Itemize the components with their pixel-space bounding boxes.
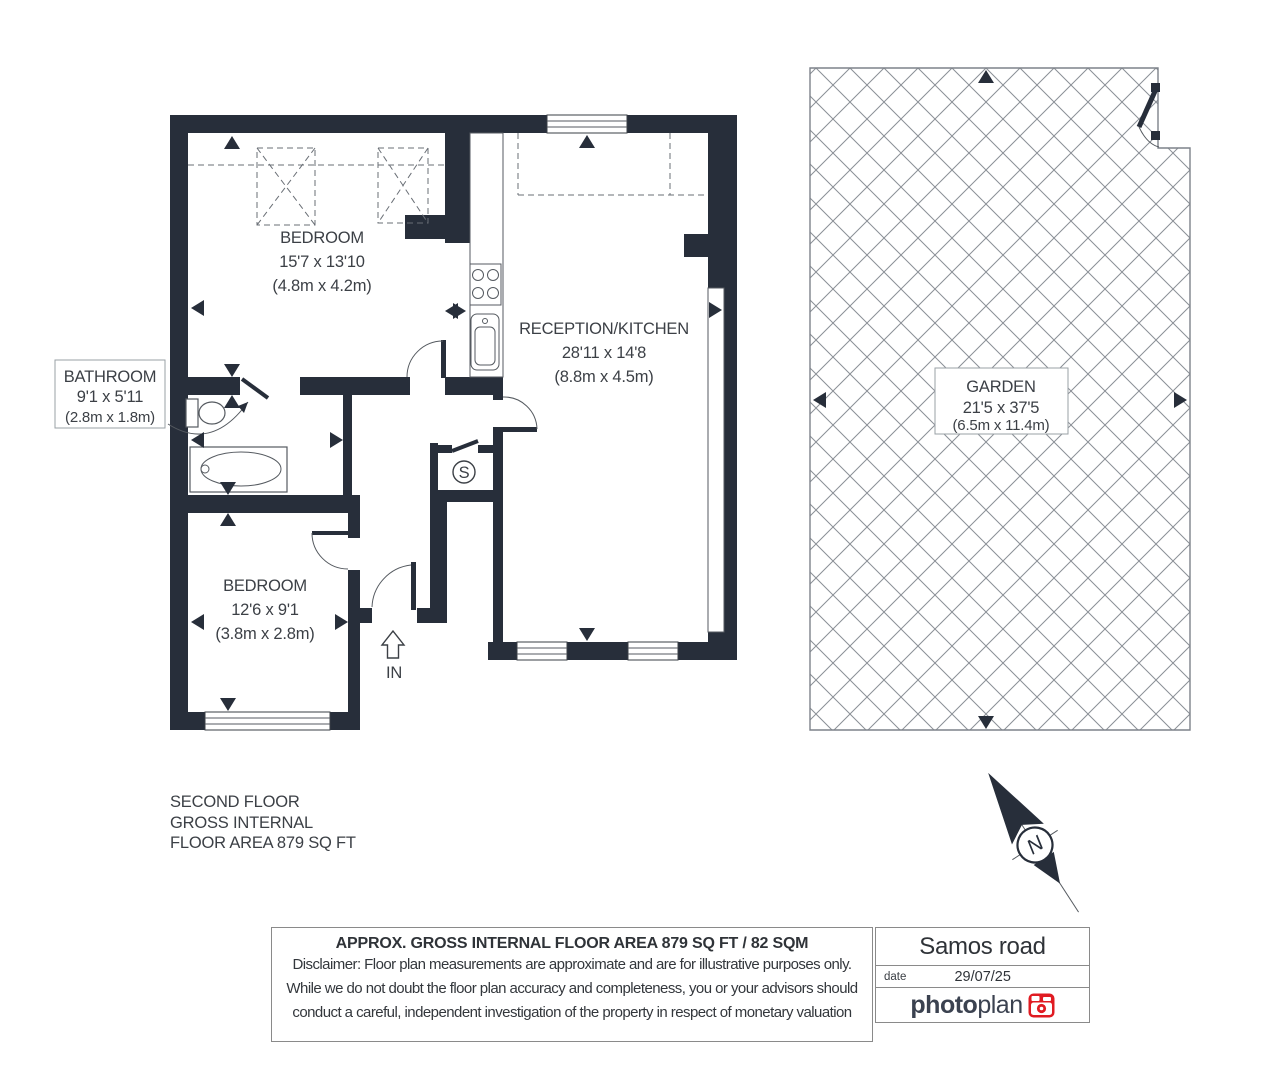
bathtub-icon bbox=[190, 447, 287, 492]
in-arrow-icon bbox=[382, 631, 404, 658]
door-bedroom1 bbox=[407, 340, 446, 378]
bathroom-callout: BATHROOM 9'1 x 5'11 (2.8m x 1.8m) bbox=[55, 360, 165, 428]
door-hall-reception bbox=[503, 397, 537, 432]
window-reception-bottom-2 bbox=[628, 642, 678, 660]
bedroom2-dims: 12'6 x 9'1 bbox=[231, 601, 299, 619]
wardrobes bbox=[188, 148, 445, 225]
window-bedroom2-bottom bbox=[205, 712, 330, 730]
entrance-label: IN bbox=[386, 664, 402, 682]
wardrobe-icon-2 bbox=[378, 148, 428, 223]
door-storage bbox=[452, 441, 478, 451]
garden-metric: (6.5m x 11.4m) bbox=[953, 417, 1050, 434]
bathroom-name: BATHROOM bbox=[64, 368, 157, 386]
footer-disclaimer-box: APPROX. GROSS INTERNAL FLOOR AREA 879 SQ… bbox=[271, 927, 873, 1042]
hob-icon bbox=[470, 264, 501, 305]
bedroom2-metric: (3.8m x 2.8m) bbox=[215, 625, 314, 643]
address: Samos road bbox=[876, 928, 1089, 966]
date-value: 29/07/25 bbox=[906, 969, 1059, 985]
door-bedroom2 bbox=[312, 533, 348, 569]
floor-summary-line2: GROSS INTERNAL bbox=[170, 813, 356, 834]
compass-north-icon: N bbox=[966, 758, 1102, 927]
garden-area: GARDEN 21'5 x 37'5 (6.5m x 11.4m) bbox=[810, 68, 1190, 730]
floorplan-drawing: GARDEN 21'5 x 37'5 (6.5m x 11.4m) bbox=[0, 0, 1276, 930]
floor-summary-line3: FLOOR AREA 879 SQ FT bbox=[170, 833, 356, 854]
room-labels: BEDROOM 15'7 x 13'10 (4.8m x 4.2m) RECEP… bbox=[215, 229, 689, 643]
window-top bbox=[547, 115, 627, 133]
bedroom1-name: BEDROOM bbox=[280, 229, 364, 247]
storage-label: S bbox=[459, 464, 470, 482]
floor-summary: SECOND FLOOR GROSS INTERNAL FLOOR AREA 8… bbox=[170, 792, 356, 854]
camera-icon bbox=[1028, 993, 1055, 1018]
footer-title: APPROX. GROSS INTERNAL FLOOR AREA 879 SQ… bbox=[272, 935, 872, 953]
brand-plan: plan bbox=[977, 991, 1022, 1020]
reception-metric: (8.8m x 4.5m) bbox=[554, 368, 653, 386]
disclaimer-line3: conduct a careful, independent investiga… bbox=[272, 1001, 872, 1025]
kitchen-fixtures bbox=[470, 133, 708, 377]
bathroom-metric: (2.8m x 1.8m) bbox=[65, 409, 155, 426]
floor-summary-line1: SECOND FLOOR bbox=[170, 792, 356, 813]
entrance-marker: IN bbox=[382, 631, 404, 682]
garden-dims: 21'5 x 37'5 bbox=[963, 399, 1040, 417]
bedroom1-metric: (4.8m x 4.2m) bbox=[272, 277, 371, 295]
bedroom1-dims: 15'7 x 13'10 bbox=[279, 253, 365, 271]
window-reception-bottom-1 bbox=[517, 642, 567, 660]
disclaimer-line2: While we do not doubt the floor plan acc… bbox=[272, 977, 872, 1001]
door-entry bbox=[372, 562, 416, 610]
bathroom-dims: 9'1 x 5'11 bbox=[77, 388, 143, 406]
disclaimer-line1: Disclaimer: Floor plan measurements are … bbox=[272, 953, 872, 977]
sink-icon bbox=[471, 314, 499, 370]
bedroom2-name: BEDROOM bbox=[223, 577, 307, 595]
garden-name: GARDEN bbox=[966, 378, 1035, 396]
window-bay-right bbox=[708, 288, 724, 632]
wardrobe-icon-1 bbox=[257, 148, 315, 225]
reception-dims: 28'11 x 14'8 bbox=[562, 344, 646, 362]
toilet-icon bbox=[186, 399, 225, 427]
date-label: date bbox=[884, 971, 906, 983]
footer-info-box: Samos road date 29/07/25 photoplan bbox=[875, 927, 1090, 1023]
brand-photo: photo bbox=[910, 991, 977, 1020]
reception-name: RECEPTION/KITCHEN bbox=[519, 320, 689, 338]
storage-cupboard: S bbox=[453, 461, 475, 483]
floorplan-page: GARDEN 21'5 x 37'5 (6.5m x 11.4m) bbox=[0, 0, 1276, 1080]
date-row: date 29/07/25 bbox=[876, 966, 1089, 988]
brand-logo: photoplan bbox=[876, 988, 1089, 1023]
